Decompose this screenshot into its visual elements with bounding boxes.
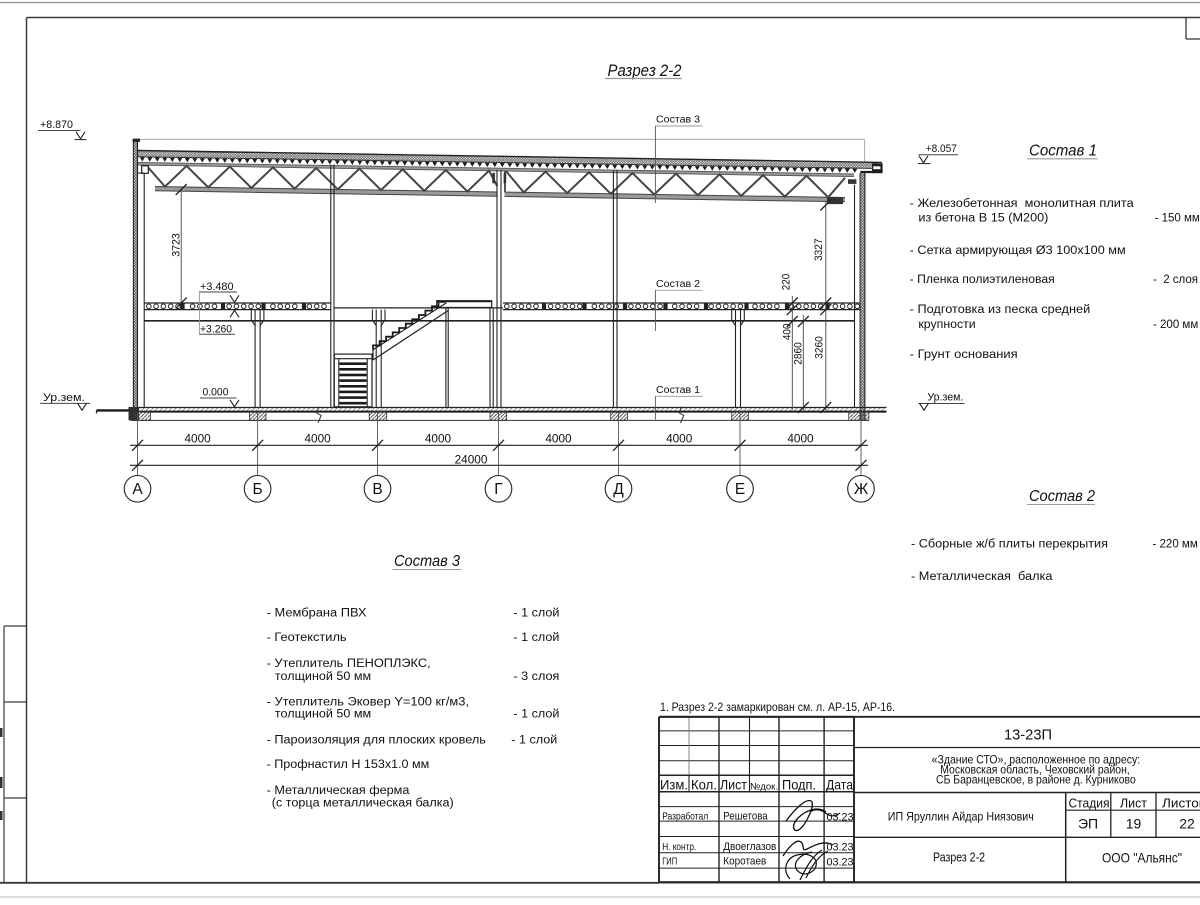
svg-text:- Сетка армирующая Ø3 100х100: - Сетка армирующая Ø3 100х100 мм: [910, 245, 1126, 257]
svg-text:ООО "Альянс": ООО "Альянс": [1102, 850, 1182, 866]
svg-text:24000: 24000: [455, 452, 488, 466]
svg-text:Листов: Листов: [1162, 795, 1200, 810]
svg-text:Состав 3: Состав 3: [394, 553, 460, 570]
svg-text:Разрез 2-2: Разрез 2-2: [933, 851, 985, 865]
svg-text:ЭП: ЭП: [1078, 815, 1098, 831]
svg-text:+8.870: +8.870: [40, 119, 73, 131]
svg-text:Решетова: Решетова: [723, 810, 768, 822]
svg-text:ИП Яруллин Айдар Ниязович: ИП Яруллин Айдар Ниязович: [888, 810, 1034, 824]
svg-text:- Профнастил Н 153х1.0 мм: - Профнастил Н 153х1.0 мм: [267, 759, 430, 771]
svg-text:- 220 мм: - 220 мм: [1153, 539, 1198, 551]
svg-text:Коротаев: Коротаев: [723, 856, 766, 868]
svg-text:Ж: Ж: [854, 481, 869, 498]
svg-text:Разрез 2-2: Разрез 2-2: [608, 61, 682, 80]
svg-text:- Пленка полиэтиленовая: - Пленка полиэтиленовая: [910, 274, 1055, 286]
svg-text:Г: Г: [494, 481, 503, 498]
svg-text:ГИП: ГИП: [662, 856, 677, 868]
svg-text:220: 220: [780, 274, 792, 291]
svg-text:Б: Б: [253, 481, 263, 498]
svg-text:Д: Д: [613, 481, 624, 498]
svg-text:- Утеплитель ПЕНОПЛЭКС,: - Утеплитель ПЕНОПЛЭКС,: [267, 658, 431, 670]
svg-text:Е: Е: [735, 481, 745, 498]
svg-text:+8.057: +8.057: [926, 143, 957, 155]
svg-text:(с торца металлическая балка): (с торца металлическая балка): [272, 797, 454, 809]
svg-text:- Утеплитель Эковер Y=100 кг/м: - Утеплитель Эковер Y=100 кг/м3,: [267, 696, 469, 708]
svg-text:Стадия: Стадия: [1069, 795, 1110, 810]
svg-text:толщиной 50 мм: толщиной 50 мм: [275, 709, 371, 721]
svg-text:3723: 3723: [171, 233, 183, 257]
svg-text:0.000: 0.000: [203, 387, 229, 399]
svg-text:- 2 слоя: - 2 слоя: [1153, 274, 1198, 286]
svg-text:толщиной 50 мм: толщиной 50 мм: [275, 671, 371, 683]
svg-text:4000: 4000: [184, 432, 211, 446]
svg-text:13-23П: 13-23П: [1004, 728, 1052, 744]
svg-text:3260: 3260: [814, 336, 826, 359]
svg-text:Ур.зем.: Ур.зем.: [927, 391, 963, 403]
svg-text:- 1 слой: - 1 слой: [513, 632, 559, 644]
svg-text:Кол.: Кол.: [691, 776, 717, 792]
svg-text:- Мембрана ПВХ: - Мембрана ПВХ: [267, 608, 367, 620]
svg-text:- 1 слой: - 1 слой: [513, 608, 559, 620]
svg-text:из бетона В 15 (М200): из бетона В 15 (М200): [918, 213, 1048, 225]
svg-text:- Грунт основания: - Грунт основания: [910, 349, 1018, 361]
svg-text:- 1 слой: - 1 слой: [513, 709, 559, 721]
svg-text:2860: 2860: [793, 342, 805, 365]
svg-text:Подп.: Подп.: [782, 776, 816, 792]
svg-text:400: 400: [782, 324, 794, 341]
svg-text:3327: 3327: [813, 239, 825, 261]
svg-text:4000: 4000: [304, 432, 331, 446]
svg-text:крупности: крупности: [918, 319, 975, 331]
svg-text:- Железобетонная монолитная п: - Железобетонная монолитная плита: [910, 198, 1135, 210]
svg-text:№док.: №док.: [750, 782, 778, 793]
svg-text:- Геотекстиль: - Геотекстиль: [267, 632, 347, 644]
svg-text:- 200 мм: - 200 мм: [1153, 319, 1198, 331]
svg-text:Лист: Лист: [720, 776, 748, 792]
svg-text:Состав 3: Состав 3: [656, 115, 700, 126]
svg-text:СБ Баранцевское, в районе д. К: СБ Баранцевское, в районе д. Курниково: [936, 773, 1136, 787]
svg-text:- 150 мм: - 150 мм: [1155, 213, 1200, 225]
svg-text:Н. контр.: Н. контр.: [662, 841, 696, 853]
svg-text:Состав 2: Состав 2: [656, 279, 700, 290]
svg-text:19: 19: [1126, 815, 1142, 831]
svg-text:22: 22: [1179, 815, 1195, 831]
svg-text:Лист: Лист: [1120, 795, 1147, 810]
svg-text:Состав 1: Состав 1: [656, 385, 700, 396]
svg-text:Изм.: Изм.: [660, 776, 688, 792]
svg-text:Двоеглазов: Двоеглазов: [723, 841, 776, 853]
svg-text:- Металлическая балка: - Металлическая балка: [911, 571, 1053, 583]
svg-text:4000: 4000: [787, 432, 814, 446]
svg-text:- Сборные ж/б плиты перекрытия: - Сборные ж/б плиты перекрытия: [911, 539, 1108, 551]
svg-text:Разработал: Разработал: [662, 811, 708, 823]
svg-text:- 1 слой: - 1 слой: [511, 735, 557, 747]
svg-text:+3.480: +3.480: [200, 281, 234, 293]
svg-text:4000: 4000: [545, 432, 572, 446]
svg-text:4000: 4000: [666, 432, 693, 446]
svg-text:Дата: Дата: [826, 776, 853, 792]
svg-text:В: В: [372, 481, 382, 498]
svg-text:- Подготовка из песка средней: - Подготовка из песка средней: [910, 304, 1090, 316]
svg-text:Ур.зем.: Ур.зем.: [43, 392, 85, 404]
svg-text:- Пароизоляция для плоских кро: - Пароизоляция для плоских кровель: [267, 735, 486, 747]
svg-text:+3.260: +3.260: [200, 323, 232, 335]
svg-text:03.23: 03.23: [826, 857, 853, 869]
svg-text:- Металлическая ферма: - Металлическая ферма: [267, 785, 410, 797]
svg-text:4000: 4000: [425, 432, 452, 446]
svg-text:1. Разрез 2-2 замаркирован см.: 1. Разрез 2-2 замаркирован см. л. АР-15,…: [660, 700, 895, 714]
svg-text:- 3 слоя: - 3 слоя: [513, 671, 559, 683]
svg-text:А: А: [132, 481, 143, 498]
svg-text:Состав 1: Состав 1: [1029, 143, 1097, 160]
svg-text:Состав 2: Состав 2: [1029, 488, 1095, 505]
